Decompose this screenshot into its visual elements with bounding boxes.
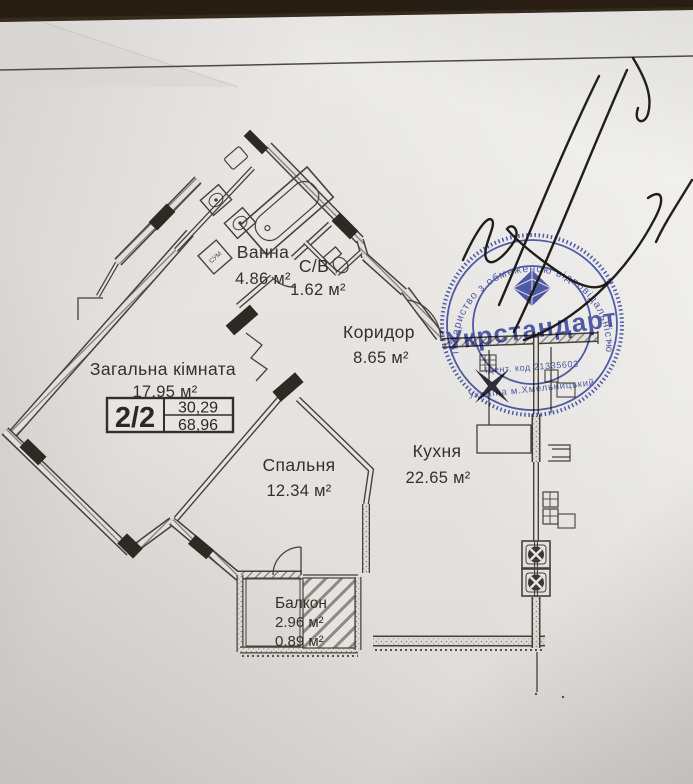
room-area-vanna: 4.86 м² [235,270,291,288]
room-label-sv: С/В [299,256,329,276]
kitchen-counter [477,425,531,453]
photographed-floor-plan: СУМ [0,0,693,784]
floor-plan-drawing: СУМ [0,0,693,784]
fixtures-layer: СУМ [198,146,575,698]
apartment-info-box: 2/2 30,29 68,96 [107,398,233,434]
room-label-kukhnia: Кухня [413,441,462,461]
stamp-ring-star: * [607,339,612,351]
paper-fold [0,23,238,87]
room-area-korydor: 8.65 м² [353,349,409,367]
room-area2-balkon: 0.89 м² [275,633,324,650]
room-area-kukhnia: 22.65 м² [405,469,470,487]
room-label-zahalna: Загальна кімната [90,359,236,379]
signature-ink [463,58,692,340]
vent-shaft [522,569,550,596]
vent-shaft [522,541,550,568]
room-area-sv: 1.62 м² [290,281,346,299]
room-area-spalnia: 12.34 м² [266,482,331,500]
room-label-spalnia: Спальня [262,455,335,475]
info-upper-value: 30,29 [178,400,218,417]
company-stamp: Товариство з обмеженою відповідальністю … [442,235,622,415]
basin [224,208,255,239]
room-label-korydor: Коридор [343,322,415,342]
apartment-number: 2/2 [115,402,155,434]
stamp-company-name: Укрстандарт [445,302,619,356]
washing-machine: СУМ [198,240,232,274]
stamp-id-line: Ідент. код 21335603 [485,359,579,376]
shelf [224,146,248,170]
washer-label: СУМ [208,251,223,265]
info-lower-value: 68,96 [178,417,218,434]
sink-symbol [548,445,570,461]
room-label-balkon: Балкон [275,595,327,612]
room-area-balkon: 2.96 м² [275,614,324,631]
room-label-vanna: Ванна [237,242,289,262]
table-edge [0,0,693,22]
